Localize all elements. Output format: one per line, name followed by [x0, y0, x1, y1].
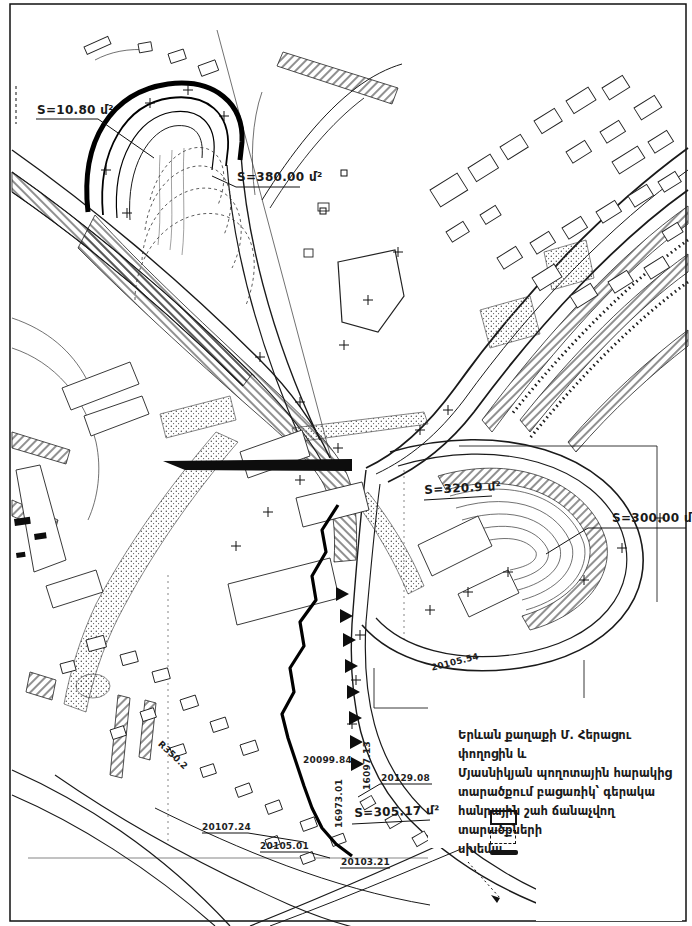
legend-swatch-dashed-outline-rect	[490, 830, 516, 844]
legend-swatch-solid-black-bar	[490, 850, 518, 855]
black-culvert-band	[163, 459, 352, 471]
area-label-s300: S=300.00 մ²	[612, 511, 692, 525]
area-label-s380: S=380.00 մ²	[237, 170, 322, 184]
legend-swatch-solid-outline-rect	[490, 810, 517, 825]
title-line: Երևան քաղաքի Մ. Հերացու փողոցին և	[458, 726, 684, 764]
title-line: Մյասնիկյան պողոտային հարակից	[458, 764, 684, 783]
area-label-s305-17: S=305.17 մ²	[354, 803, 440, 820]
survey-number-vertical: 16097.13	[362, 741, 372, 790]
title-line: տարածքում բացառիկ՝ գերակա	[458, 783, 684, 802]
map-legend	[490, 810, 518, 855]
area-label-s10-80: S=10.80 մ²	[37, 103, 114, 117]
map-page: S=10.80 մ² S=380.00 մ² S=320.9 մ² S=300.…	[0, 0, 692, 926]
survey-number: 20099.84	[303, 755, 352, 765]
survey-number: 20105.01	[260, 841, 309, 851]
retaining-wall-triangles	[336, 587, 364, 771]
survey-number: 20129.08	[381, 773, 430, 783]
survey-number: 20103.21	[341, 857, 390, 867]
survey-number-vertical: 16973.01	[334, 779, 344, 828]
dotted-arrow	[468, 862, 500, 903]
survey-number: 20107.24	[202, 822, 251, 832]
